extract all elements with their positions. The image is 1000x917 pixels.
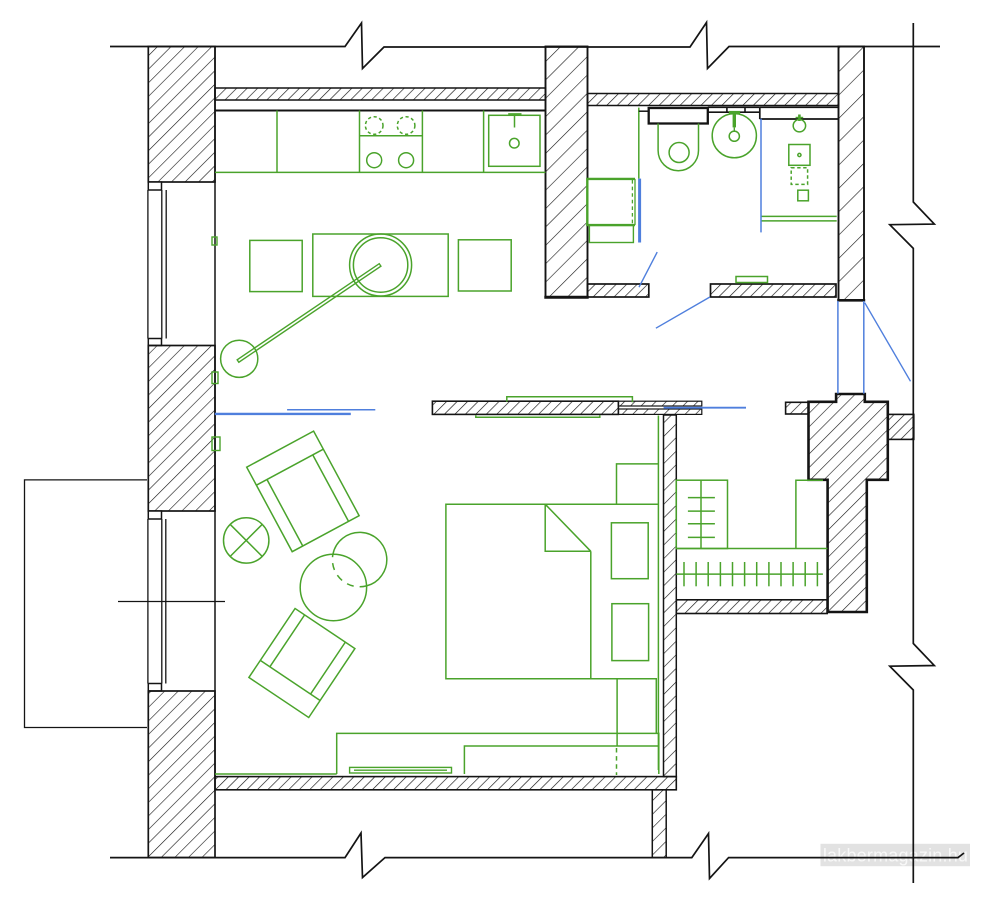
svg-text:lakbermagazin.hu: lakbermagazin.hu [823, 846, 968, 866]
